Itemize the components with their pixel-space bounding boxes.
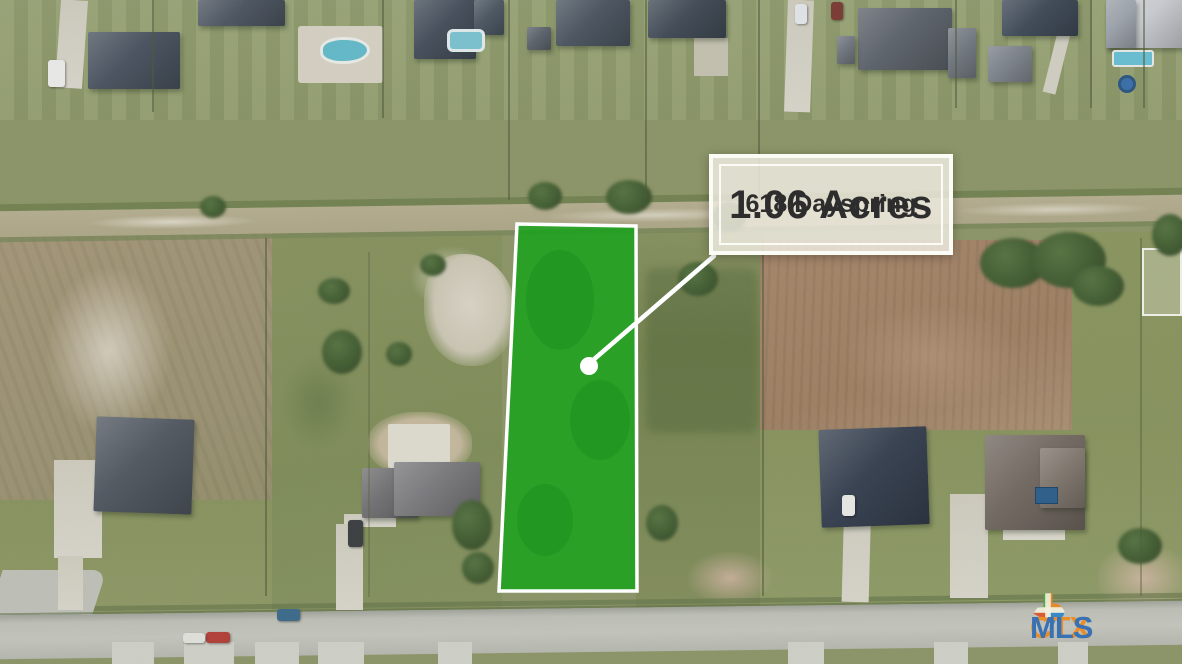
fence-line (1140, 238, 1142, 596)
house-roof (556, 0, 630, 46)
concrete-pad (1142, 248, 1182, 316)
fence-line (265, 238, 267, 596)
trampoline (1118, 75, 1136, 93)
fence-line (152, 0, 154, 112)
fence-line (508, 0, 510, 200)
driveway-apron (184, 642, 234, 664)
house-roof-wing (1106, 0, 1136, 48)
tree (462, 552, 494, 584)
driveway-apron (112, 642, 154, 664)
parked-car (348, 520, 363, 547)
bush (200, 196, 226, 218)
callout-marker-dot (580, 357, 598, 375)
fence-line (382, 0, 384, 118)
bush (322, 330, 362, 374)
tree (646, 505, 678, 541)
shed-roof (988, 46, 1032, 82)
parked-car (795, 4, 807, 24)
driveway (950, 494, 988, 598)
address-text: 618 Dayspring (746, 190, 917, 219)
fence-line (368, 252, 370, 597)
fence-line (762, 240, 764, 596)
acreage-label-box: 1.06 Acres 618 Dayspring (709, 154, 953, 255)
dirt-path (0, 188, 1182, 245)
driveway-apron (788, 642, 824, 664)
tree (528, 182, 562, 210)
driveway-apron (255, 642, 299, 664)
fence-line (1143, 0, 1145, 108)
house-roof (948, 28, 976, 78)
car-on-street (206, 632, 230, 643)
highlighted-lot-polygon (499, 224, 637, 591)
tree (1072, 266, 1124, 306)
solar-panel (1035, 487, 1058, 504)
shed-roof (837, 36, 855, 64)
tree (1152, 214, 1182, 256)
truck-on-street (183, 633, 205, 643)
house-roof (88, 32, 180, 89)
fence-line (955, 0, 957, 108)
bush (420, 254, 446, 276)
bush (386, 342, 412, 366)
parked-car (831, 2, 843, 20)
house-roof (858, 8, 952, 70)
bush (318, 278, 350, 304)
parked-truck (842, 495, 855, 516)
car-on-street (277, 609, 300, 621)
driveway (58, 556, 83, 610)
driveway-apron (934, 642, 968, 664)
watermark-mls: MLS (1030, 610, 1092, 646)
swimming-pool (1112, 50, 1154, 67)
fence-line (645, 0, 647, 198)
shed-roof (527, 27, 551, 50)
bush (678, 262, 718, 296)
parked-car (48, 60, 65, 87)
fence-line (1090, 0, 1092, 108)
gravel-patch (688, 552, 772, 604)
house-roof (198, 0, 285, 26)
house-roof (1002, 0, 1078, 36)
house-roof (818, 426, 929, 528)
patio (694, 38, 728, 76)
driveway-apron (318, 642, 364, 664)
house-roof (648, 0, 726, 38)
house-roof (93, 416, 194, 514)
aerial-photo: 1.06 Acres 618 Dayspring CTX MLS (0, 0, 1182, 664)
swimming-pool (447, 29, 485, 52)
tree (452, 500, 492, 550)
lot-grass-texture (517, 250, 630, 556)
driveway-apron (438, 642, 472, 664)
